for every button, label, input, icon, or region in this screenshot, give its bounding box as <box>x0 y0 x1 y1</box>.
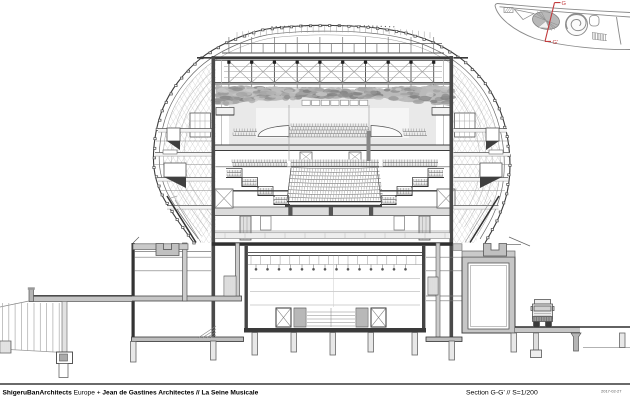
svg-text:G: G <box>562 1 567 7</box>
svg-text:G’: G’ <box>553 40 559 46</box>
svg-text:Section G-G’ // S=1/200: Section G-G’ // S=1/200 <box>466 390 538 397</box>
svg-text:2017-02-27: 2017-02-27 <box>601 389 622 394</box>
svg-text:ShigeruBanArchitects Europe +: ShigeruBanArchitects Europe + Jean de Ga… <box>3 390 259 397</box>
